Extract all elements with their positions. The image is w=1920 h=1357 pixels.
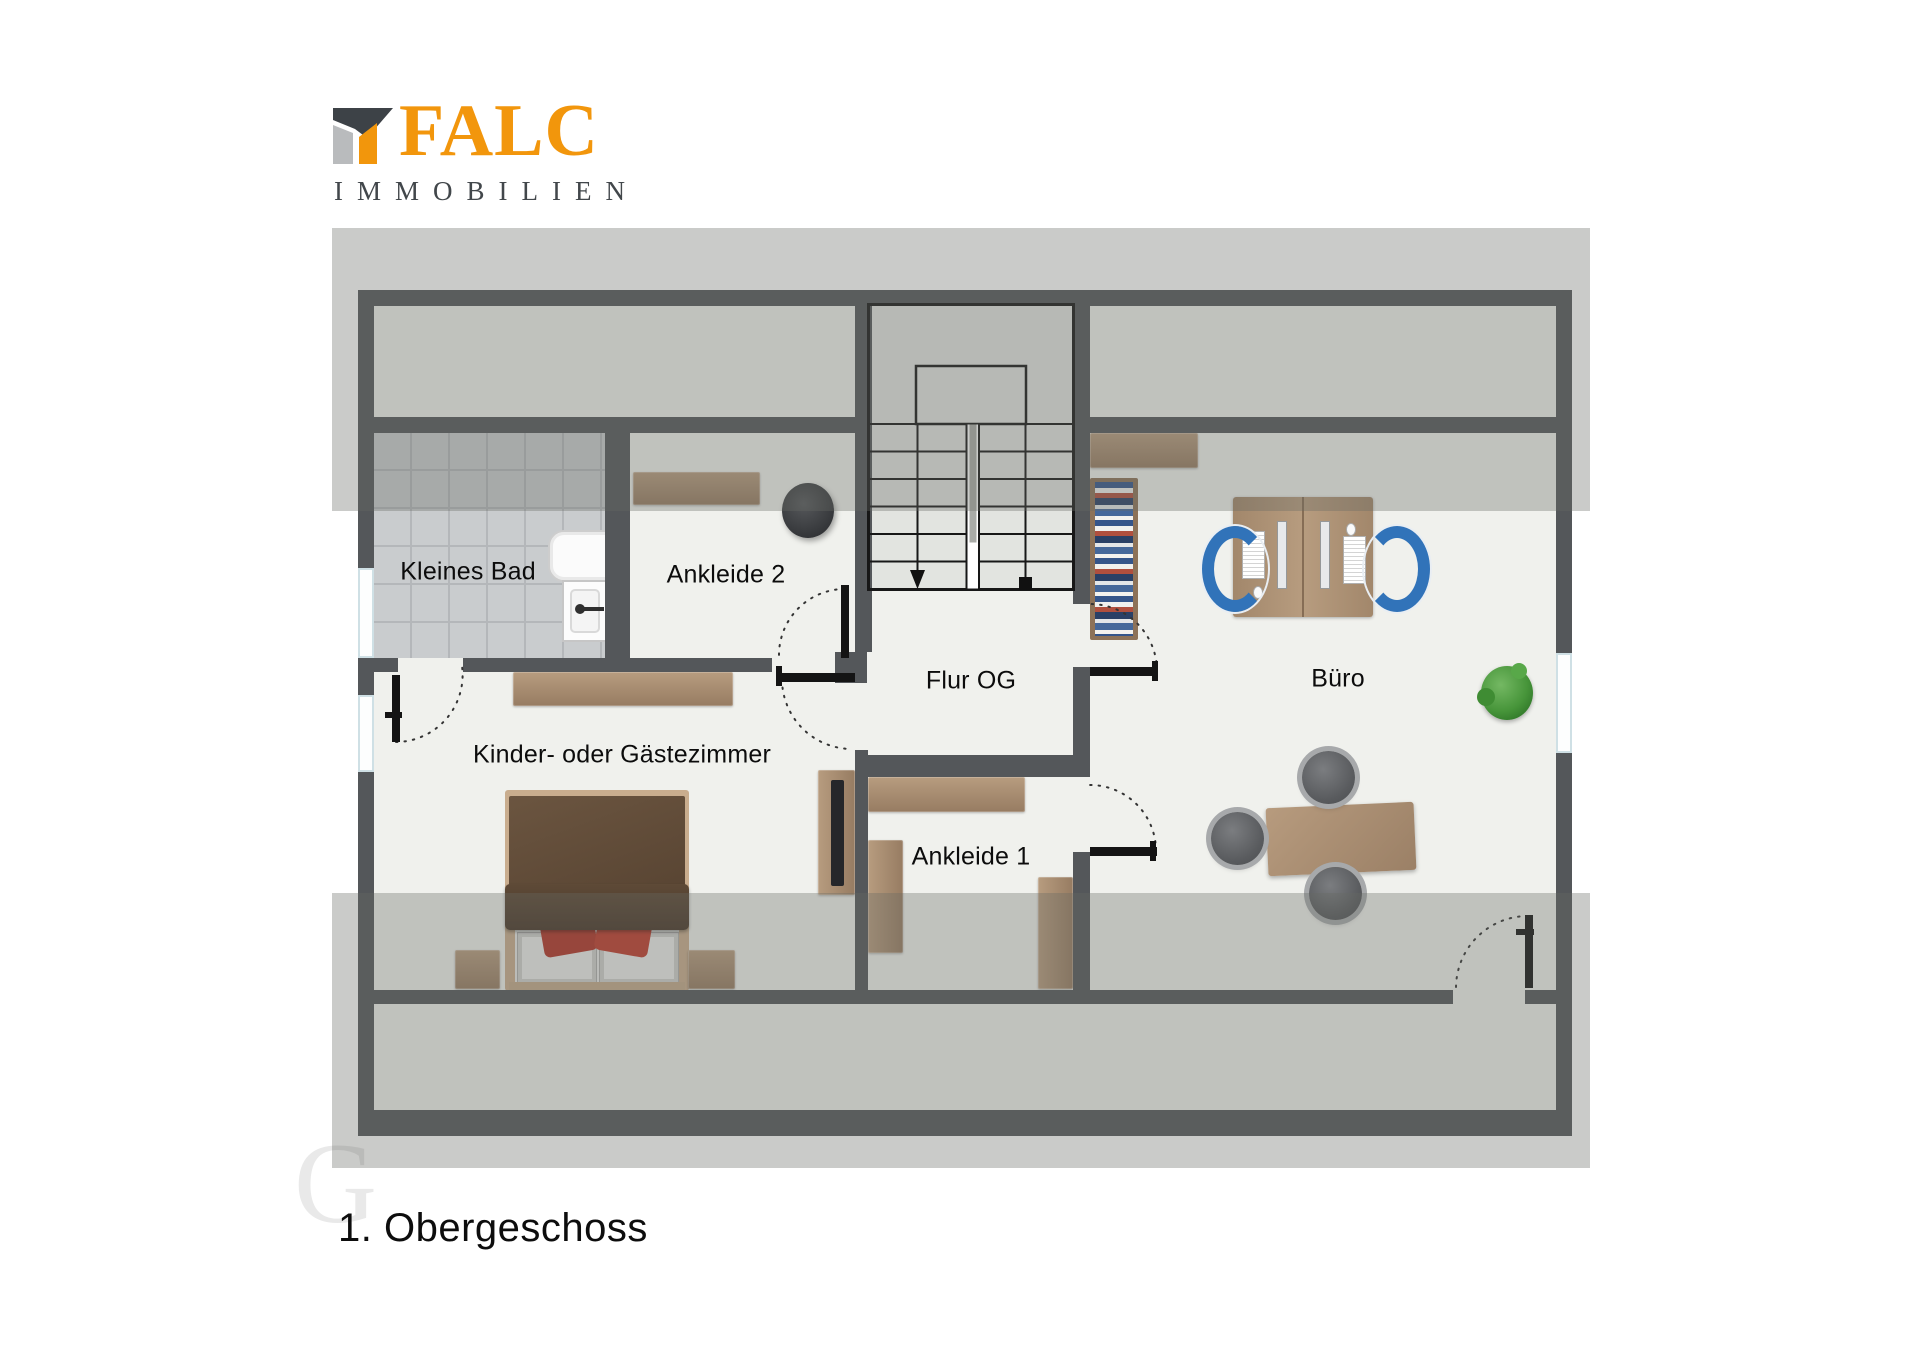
door-arc-bad bbox=[396, 666, 463, 742]
label-ankleide-1: Ankleide 1 bbox=[912, 843, 1031, 872]
door-leaf-buero bbox=[1090, 667, 1158, 676]
door-arc-kinder bbox=[782, 679, 852, 749]
logo-gray-shape bbox=[333, 125, 353, 164]
door-tick-kinder bbox=[776, 666, 782, 686]
door-arc-ankleide2 bbox=[779, 589, 845, 655]
stair-start-marker bbox=[1019, 577, 1032, 590]
door-arc-buero bbox=[1090, 604, 1157, 671]
stair-center-stub bbox=[970, 425, 977, 543]
floorplan-page: FALC IMMOBILIEN bbox=[0, 0, 1920, 1357]
door-leaf-bottom-right bbox=[1525, 915, 1533, 988]
stair-landing bbox=[916, 366, 1026, 424]
label-kleines-bad: Kleines Bad bbox=[400, 558, 536, 587]
door-tick-buero bbox=[1152, 661, 1158, 681]
falc-logo-icon bbox=[332, 107, 394, 165]
brand-subtitle: IMMOBILIEN bbox=[334, 176, 639, 207]
label-buero: Büro bbox=[1311, 665, 1365, 694]
door-leaf-ankleide2 bbox=[841, 585, 849, 658]
door-leaf-ankleide1 bbox=[1090, 847, 1157, 856]
brand-name: FALC bbox=[399, 94, 599, 168]
door-leaf-bad bbox=[392, 675, 400, 742]
door-arcs bbox=[396, 589, 1528, 988]
door-handle-bad bbox=[385, 712, 402, 718]
door-tick-ankleide1 bbox=[1150, 841, 1156, 861]
door-arc-ankleide1 bbox=[1090, 785, 1156, 851]
label-kinder-gaestezimmer: Kinder- oder Gästezimmer bbox=[473, 741, 771, 770]
label-flur-og: Flur OG bbox=[926, 667, 1016, 696]
label-ankleide-2: Ankleide 2 bbox=[667, 561, 786, 590]
page-title: 1. Obergeschoss bbox=[338, 1206, 648, 1251]
door-arc-bottom-right bbox=[1456, 916, 1528, 988]
door-leaf-kinder bbox=[780, 673, 855, 682]
faucet-knob bbox=[575, 604, 585, 614]
stair-direction-arrow bbox=[910, 570, 925, 589]
door-handle-bottom-right bbox=[1516, 929, 1534, 935]
